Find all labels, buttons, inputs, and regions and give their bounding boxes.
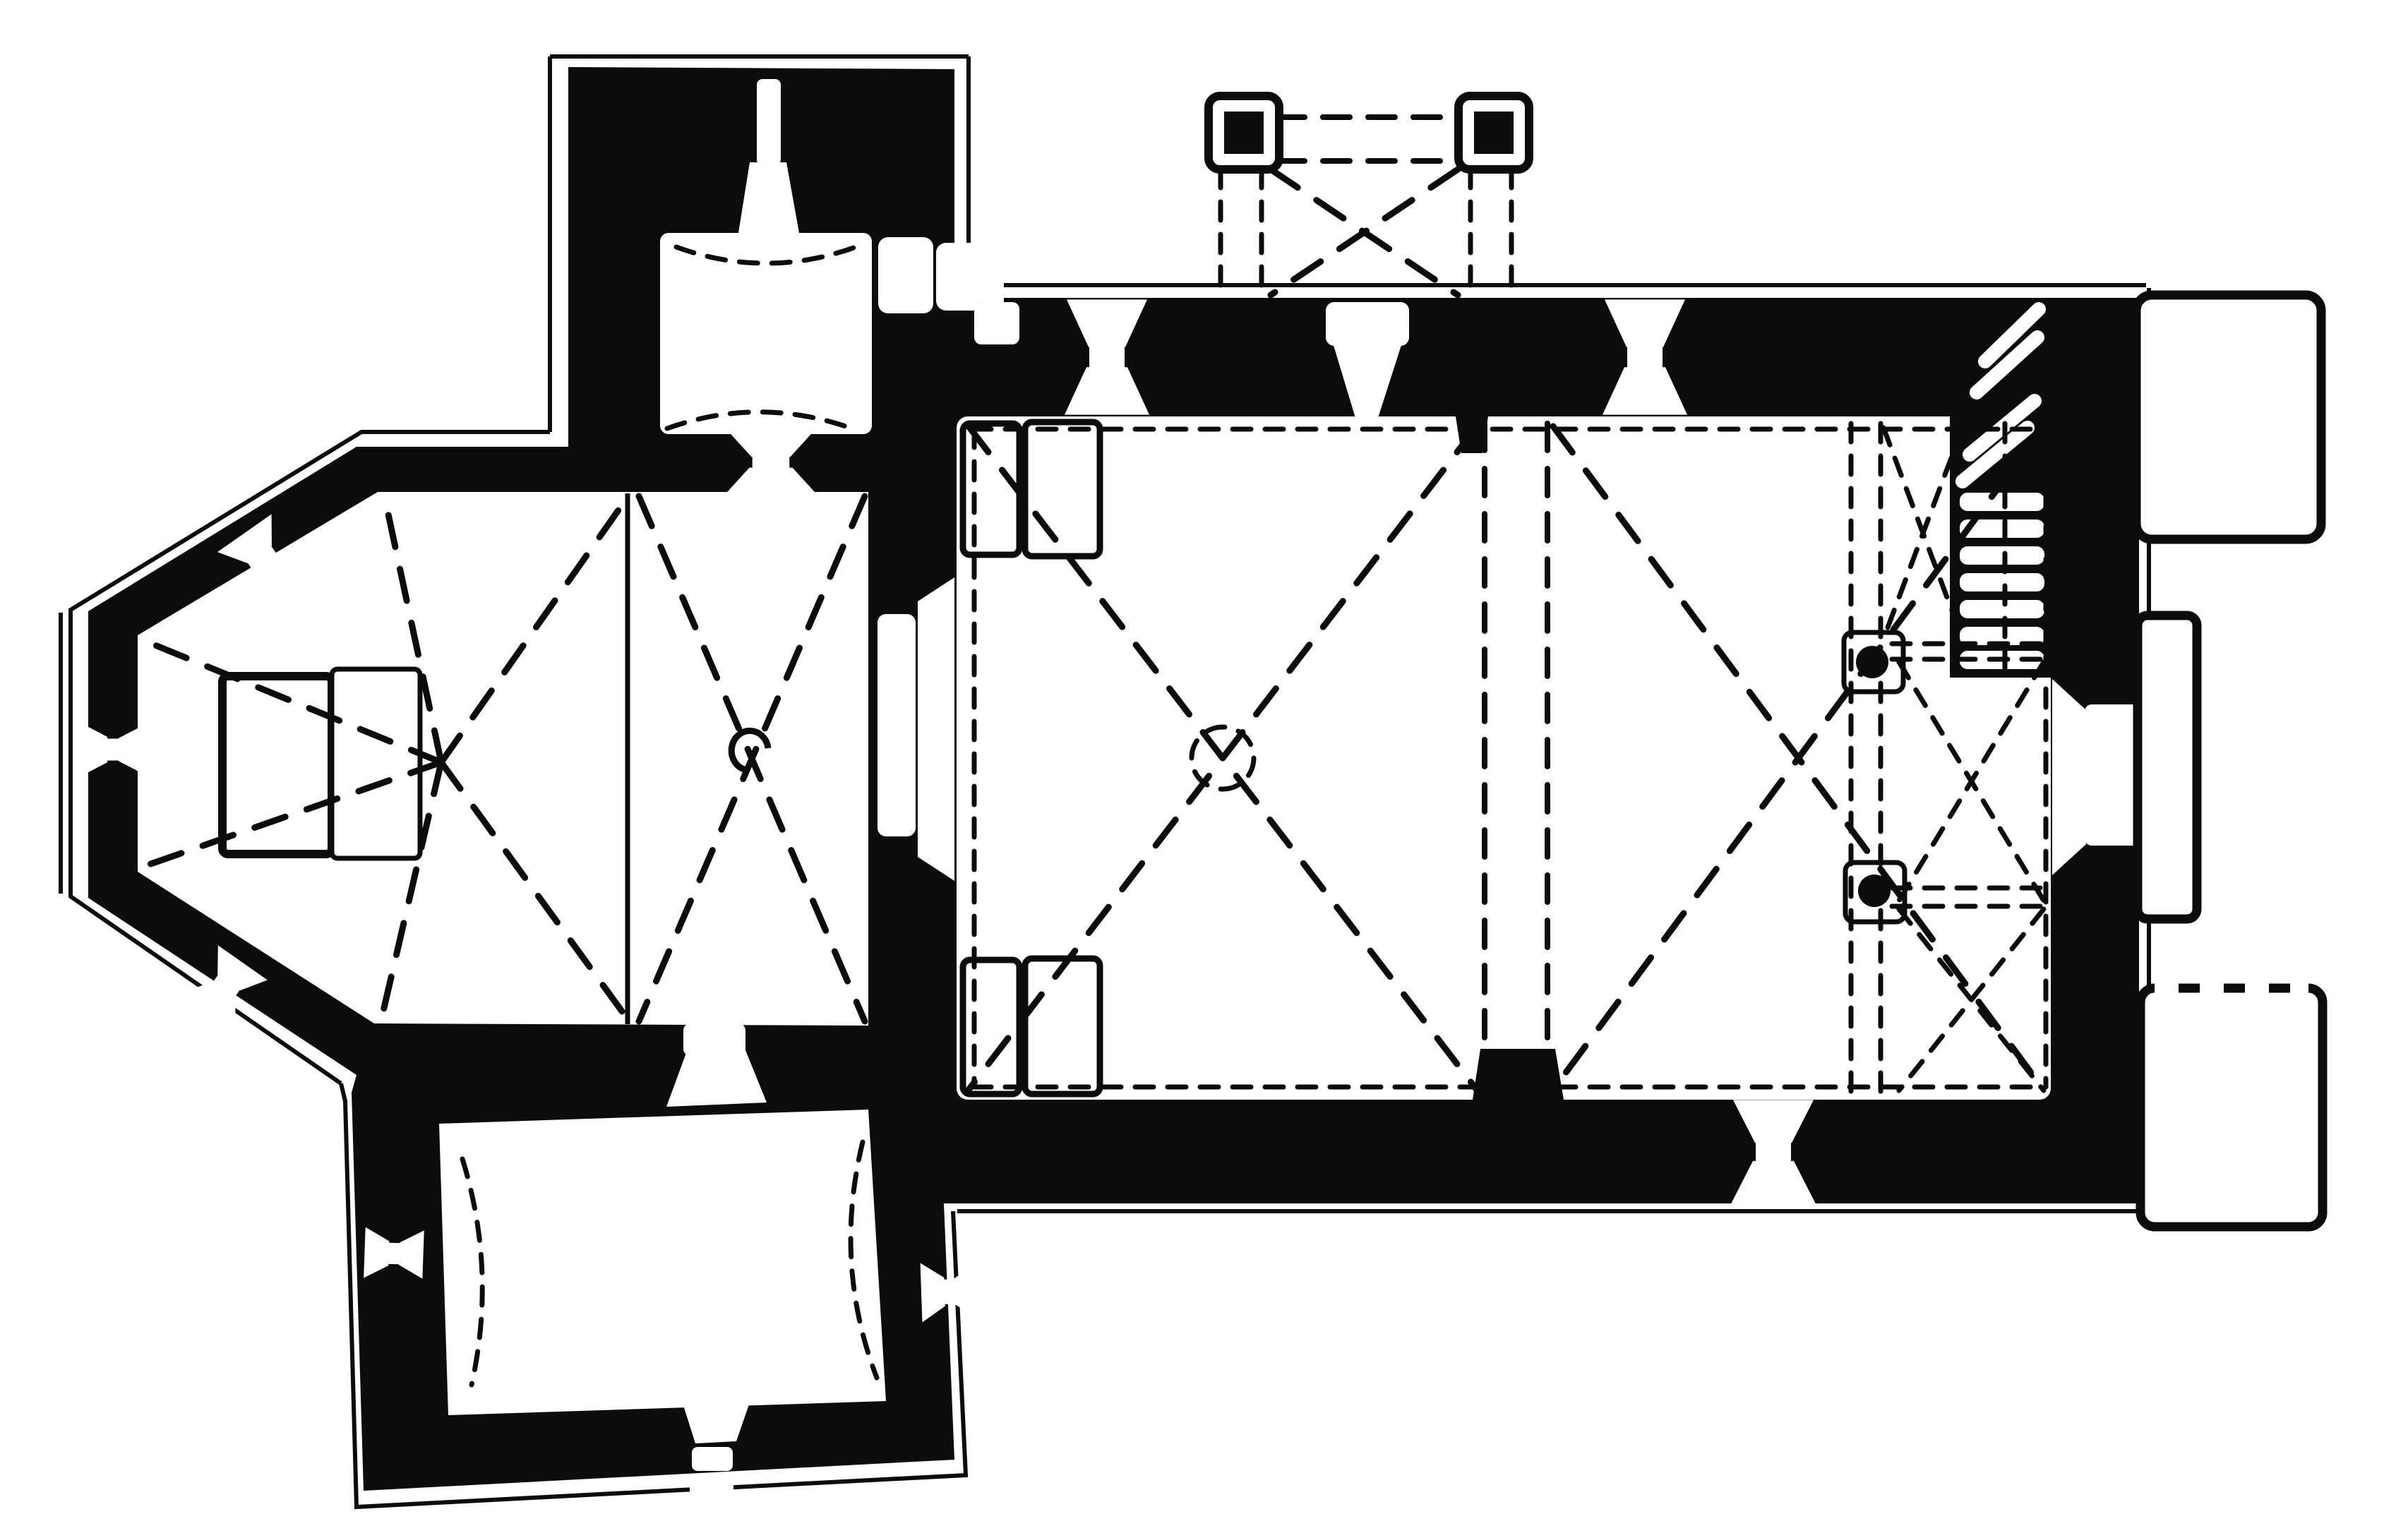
floor-plan-figure [0,0,2408,1538]
floor-plan-svg [0,0,2408,1538]
nave-interior [957,416,2051,1100]
altar [222,669,420,858]
southwest-pier-b [1025,959,1100,1094]
south-wall-pier [1473,1049,1564,1100]
altar-platform [332,669,420,858]
altar-block [222,676,332,854]
southwest-pier-a [963,960,1019,1094]
northwest-pier-a [963,423,1019,555]
middle-east-buttress [2138,615,2197,919]
north-chapel-interior [660,233,872,434]
southeast-buttress [2140,988,2323,1227]
porch-pillar-east [1458,96,1529,169]
south-chapel-interior [439,1110,886,1415]
porch-pillar-west [1209,96,1279,169]
northwest-pier-b [1025,422,1100,556]
northeast-buttress [2136,295,2321,539]
